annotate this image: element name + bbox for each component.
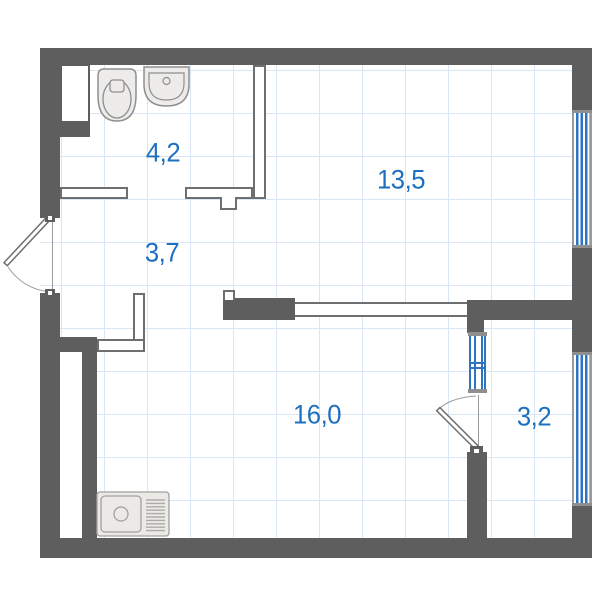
room-label-living-room: 13,5: [377, 165, 425, 196]
symbols-layer: [0, 0, 600, 600]
room-label-hallway: 3,7: [145, 238, 179, 269]
kitchen-sink-icon: [97, 492, 169, 536]
entrance-door-icon: [4, 214, 55, 297]
balcony-door-icon: [437, 395, 483, 456]
room-label-bathroom: 4,2: [146, 138, 180, 169]
toilet-icon: [98, 69, 136, 121]
room-label-balcony: 3,2: [517, 402, 551, 433]
bathroom-sink-icon: [144, 67, 189, 106]
room-label-kitchen-living: 16,0: [293, 400, 341, 431]
floor-plan: 4,2 3,7 13,5 16,0 3,2: [0, 0, 600, 600]
